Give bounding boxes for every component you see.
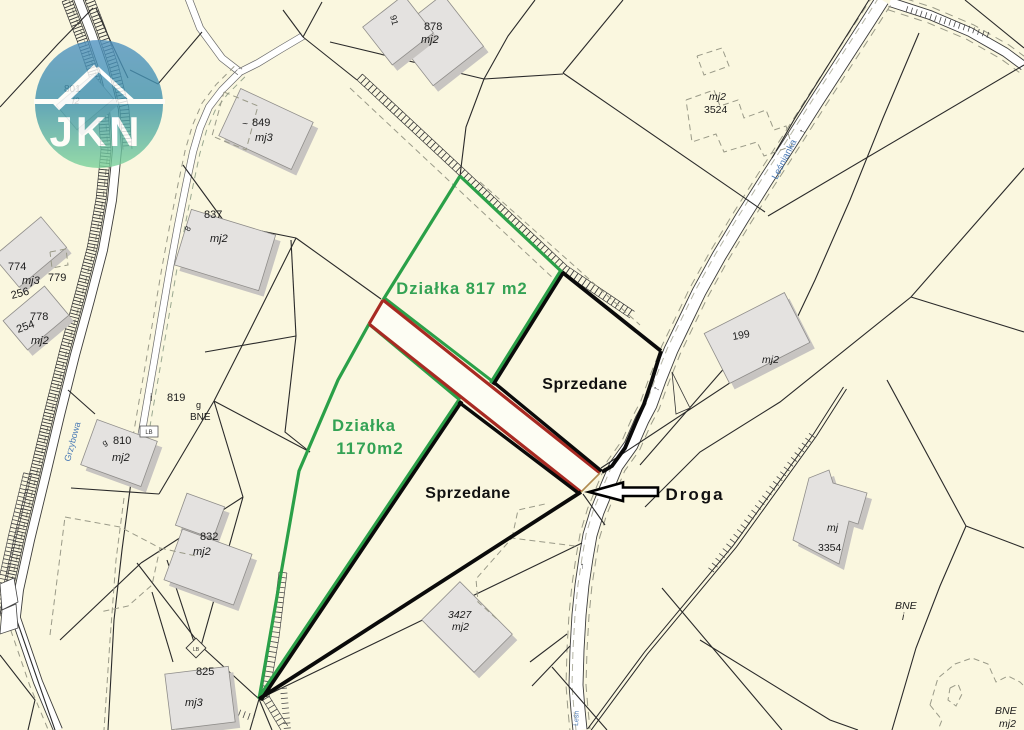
- svg-text:825: 825: [196, 666, 214, 678]
- svg-text:832: 832: [200, 531, 218, 543]
- svg-text:Działka: Działka: [332, 417, 396, 435]
- svg-text:mj3: mj3: [185, 697, 204, 709]
- svg-text:774: 774: [8, 261, 26, 273]
- svg-text:3524: 3524: [704, 104, 728, 116]
- svg-text:Działka 817 m2: Działka 817 m2: [396, 280, 527, 298]
- svg-text:LB: LB: [193, 647, 200, 653]
- svg-text:mj2: mj2: [452, 621, 469, 633]
- svg-text:i: i: [150, 393, 152, 404]
- svg-text:Sprzedane: Sprzedane: [425, 485, 510, 502]
- svg-text:878: 878: [424, 21, 442, 33]
- svg-text:Sprzedane: Sprzedane: [542, 376, 627, 393]
- svg-text:3354: 3354: [818, 542, 842, 554]
- svg-text:837: 837: [204, 209, 222, 221]
- svg-text:LB: LB: [145, 430, 152, 436]
- svg-text:mj2: mj2: [112, 452, 130, 464]
- svg-text:mj3: mj3: [255, 132, 274, 144]
- svg-text:mj2: mj2: [999, 718, 1016, 730]
- svg-text:810: 810: [113, 435, 131, 447]
- svg-text:779: 779: [48, 272, 66, 284]
- svg-text:3427: 3427: [448, 609, 473, 621]
- svg-text:g: g: [196, 400, 201, 410]
- svg-text:JKN: JKN: [49, 108, 142, 155]
- svg-text:mj2: mj2: [210, 233, 228, 245]
- svg-text:mj3: mj3: [22, 275, 41, 287]
- svg-text:Leśn: Leśn: [573, 710, 581, 726]
- svg-text:BNE: BNE: [995, 705, 1018, 717]
- svg-text:mj2: mj2: [421, 34, 439, 46]
- svg-text:mj2: mj2: [31, 335, 49, 347]
- svg-text:mj2: mj2: [762, 354, 779, 366]
- svg-text:mj2: mj2: [709, 91, 726, 103]
- svg-text:mj2: mj2: [193, 546, 211, 558]
- svg-text:BNE: BNE: [895, 600, 918, 612]
- svg-text:←: ←: [578, 561, 589, 572]
- svg-text:mj: mj: [827, 522, 839, 534]
- svg-text:819: 819: [167, 392, 185, 404]
- svg-text:Droga: Droga: [665, 485, 724, 504]
- svg-text:~: ~: [242, 119, 248, 130]
- svg-text:1170m2: 1170m2: [336, 439, 403, 458]
- svg-text:849: 849: [252, 117, 270, 129]
- svg-text:BNE: BNE: [190, 412, 211, 423]
